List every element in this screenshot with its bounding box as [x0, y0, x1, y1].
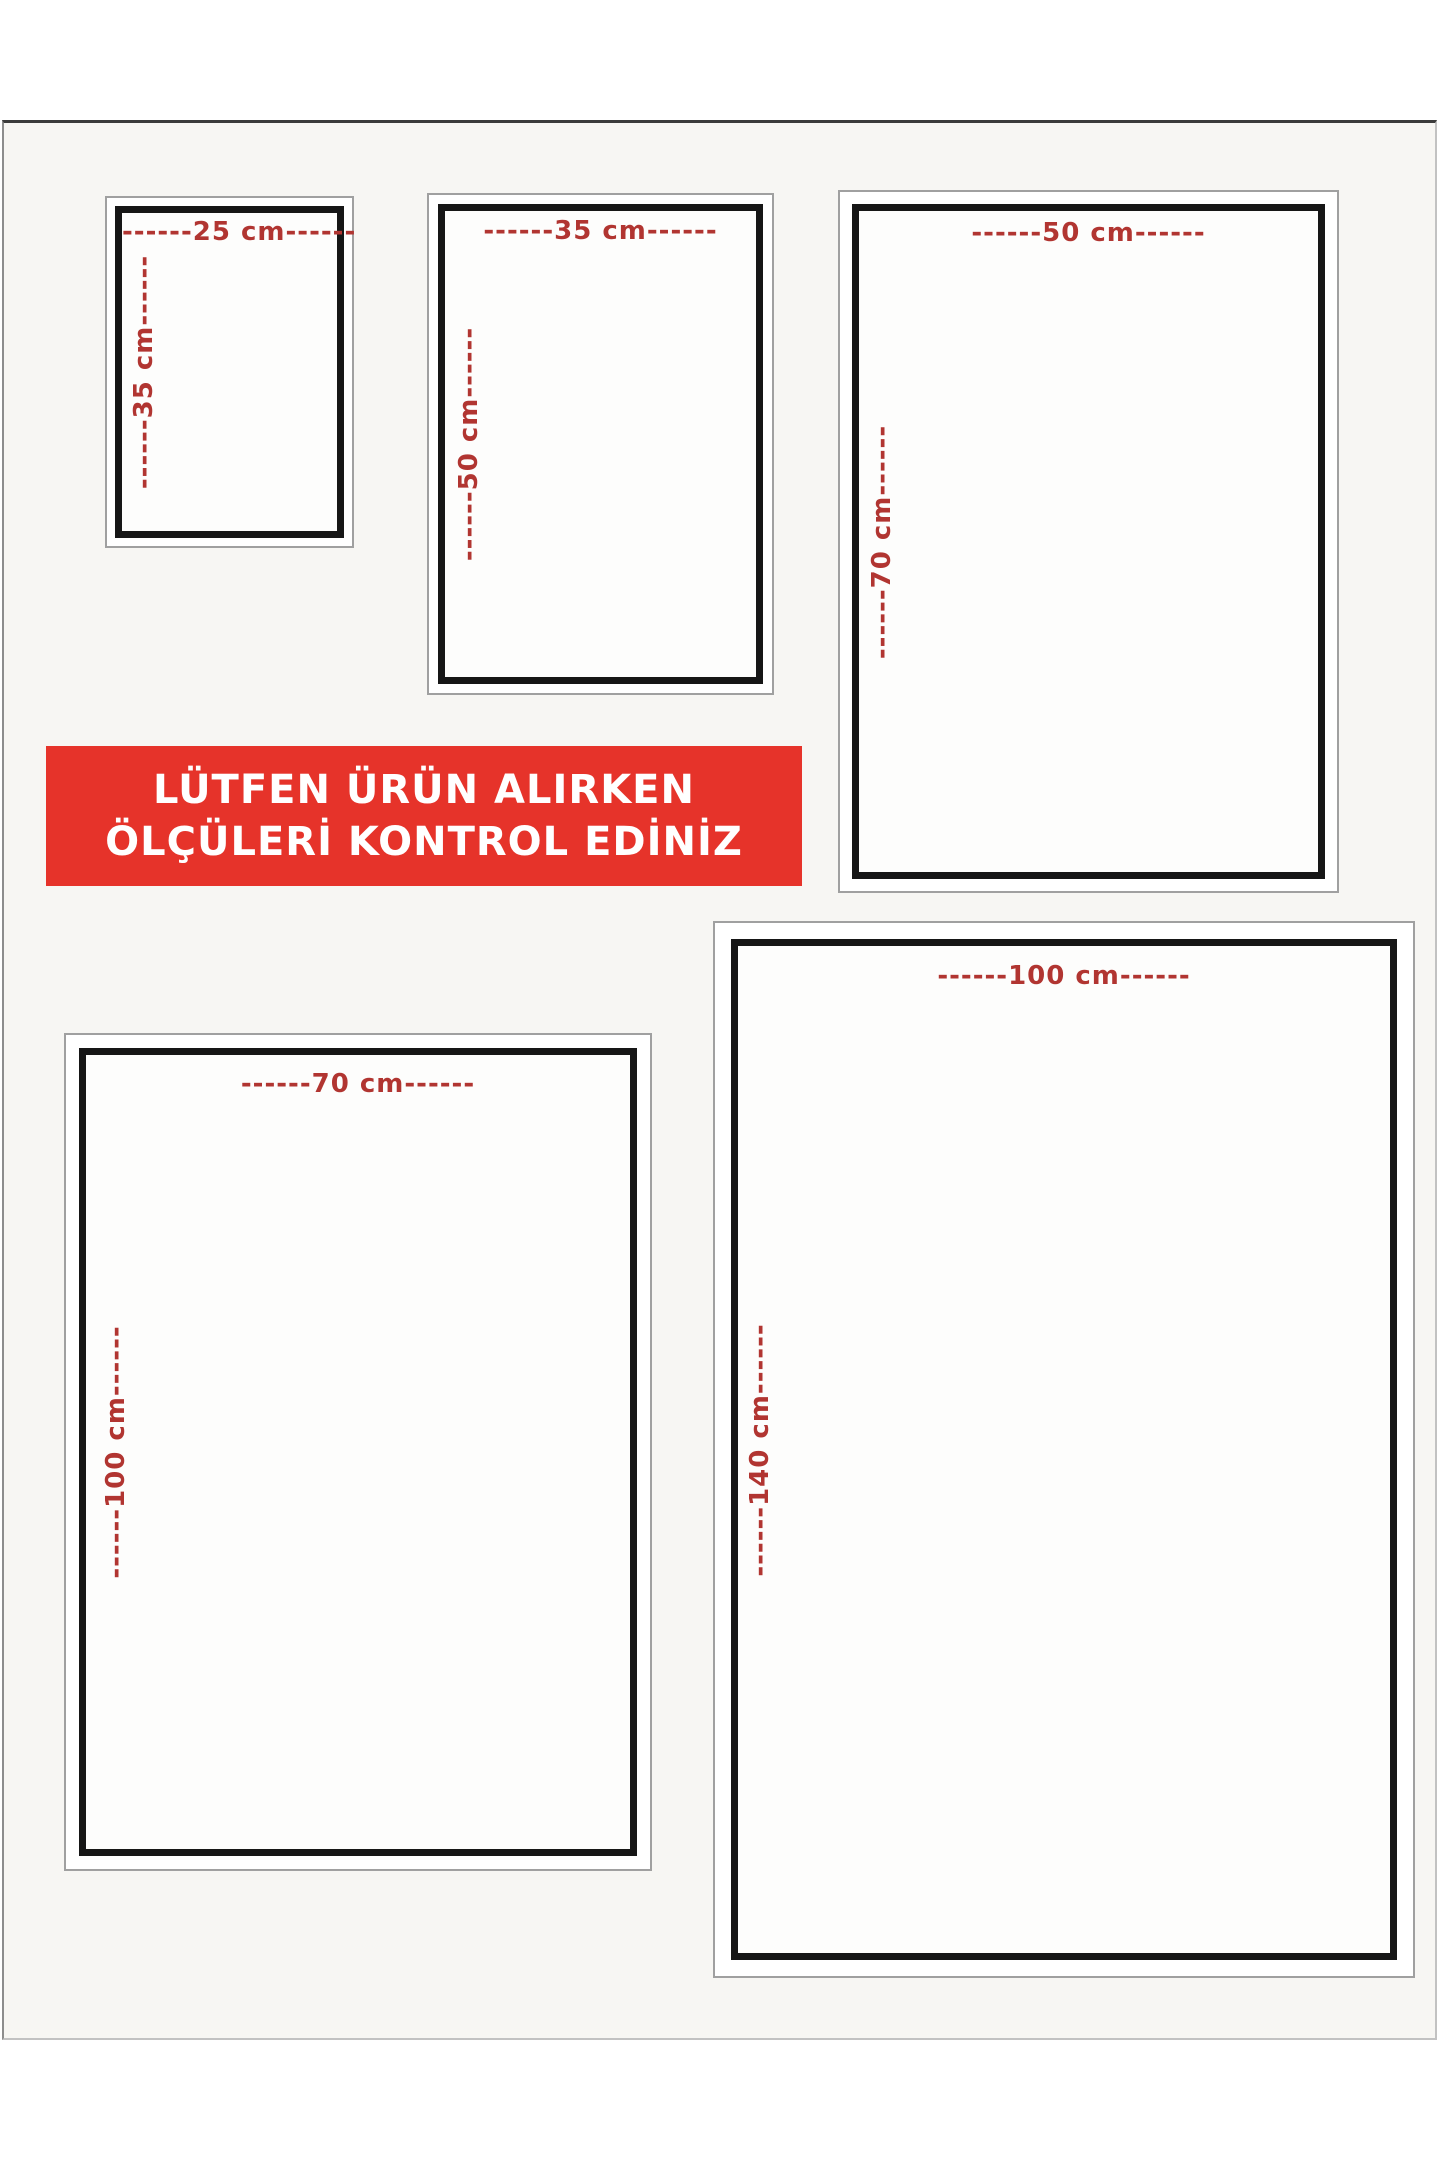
- notice-banner-line1: LÜTFEN ÜRÜN ALIRKEN: [46, 764, 802, 816]
- size-box-35x50: ------35 cm------ ------50 cm------: [427, 193, 774, 695]
- width-label-35cm: ------35 cm------: [445, 216, 756, 246]
- height-label-50cm: ------50 cm------: [454, 327, 484, 561]
- size-box-70x100: ------70 cm------ ------100 cm------: [64, 1033, 652, 1871]
- size-box-50x70: ------50 cm------ ------70 cm------: [838, 190, 1339, 893]
- size-box-70x100-frame: ------70 cm------ ------100 cm------: [79, 1048, 637, 1856]
- size-chart-image: { "notice_banner": { "line1": "LÜTFEN ÜR…: [0, 0, 1440, 2160]
- notice-banner-line2: ÖLÇÜLERİ KONTROL EDİNİZ: [46, 816, 802, 868]
- size-chart-canvas: ------25 cm------ ------35 cm------ ----…: [2, 120, 1437, 2040]
- size-box-35x50-frame: ------35 cm------ ------50 cm------: [438, 204, 763, 684]
- size-box-25x35: ------25 cm------ ------35 cm------: [105, 196, 354, 548]
- width-label-70cm: ------70 cm------: [86, 1069, 630, 1099]
- notice-banner: LÜTFEN ÜRÜN ALIRKEN ÖLÇÜLERİ KONTROL EDİ…: [46, 746, 802, 886]
- height-label-70cm: ------70 cm------: [867, 424, 897, 658]
- height-label-35cm: ------35 cm------: [129, 255, 159, 489]
- size-box-50x70-frame: ------50 cm------ ------70 cm------: [852, 204, 1325, 879]
- width-label-25cm: ------25 cm------: [122, 217, 337, 247]
- size-box-100x140-frame: ------100 cm------ ------140 cm------: [731, 939, 1397, 1960]
- size-box-25x35-frame: ------25 cm------ ------35 cm------: [115, 206, 344, 538]
- width-label-100cm: ------100 cm------: [738, 961, 1390, 991]
- size-box-100x140: ------100 cm------ ------140 cm------: [713, 921, 1415, 1978]
- width-label-50cm: ------50 cm------: [859, 218, 1318, 248]
- height-label-140cm: ------140 cm------: [745, 1323, 775, 1576]
- height-label-100cm: ------100 cm------: [101, 1325, 131, 1578]
